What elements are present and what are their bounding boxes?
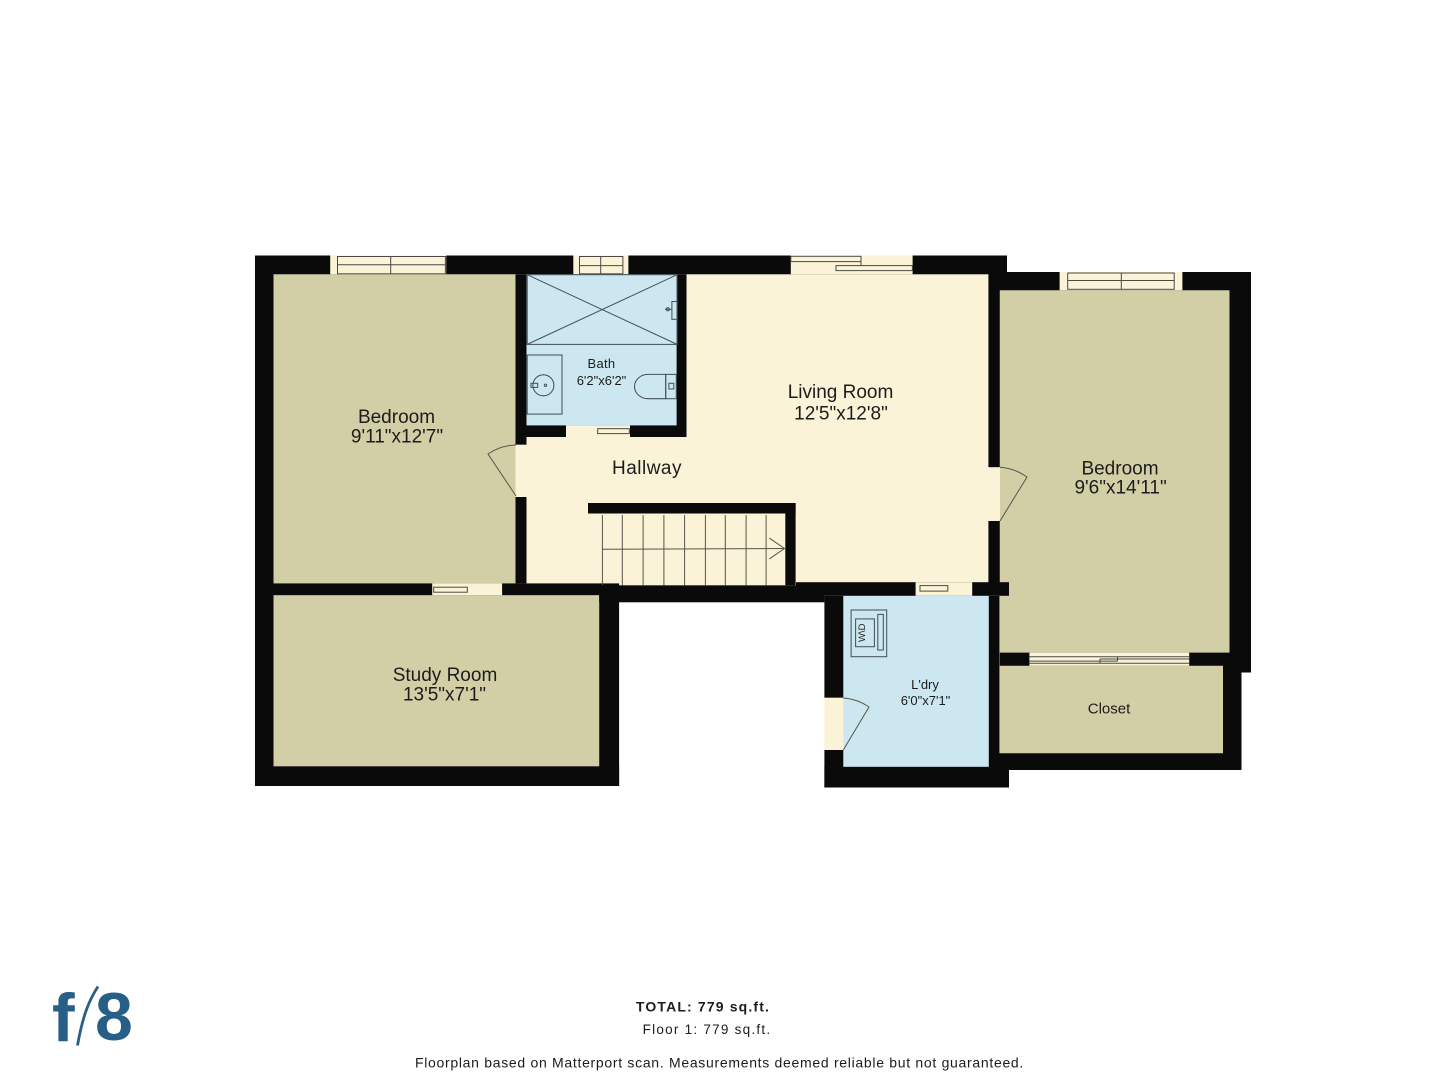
svg-text:TOTAL: 779 sq.ft.: TOTAL: 779 sq.ft. [636, 999, 770, 1015]
svg-text:Bath: Bath [588, 356, 616, 371]
svg-text:f: f [52, 980, 75, 1056]
svg-text:9'6"x14'11": 9'6"x14'11" [1074, 478, 1166, 499]
svg-text:Floor 1: 779 sq.ft.: Floor 1: 779 sq.ft. [643, 1022, 772, 1037]
svg-text:Floorplan based on Matterport: Floorplan based on Matterport scan. Meas… [415, 1055, 1024, 1071]
svg-text:W\D: W\D [857, 623, 868, 642]
svg-text:Closet: Closet [1088, 701, 1131, 718]
svg-text:Study Room: Study Room [393, 665, 498, 686]
svg-text:13'5"x7'1": 13'5"x7'1" [403, 685, 486, 706]
svg-text:6'2"x6'2": 6'2"x6'2" [577, 373, 627, 388]
svg-text:Hallway: Hallway [612, 458, 682, 479]
svg-text:L'dry: L'dry [911, 677, 939, 692]
svg-text:6'0"x7'1": 6'0"x7'1" [901, 693, 951, 708]
svg-text:Bedroom: Bedroom [358, 407, 435, 428]
svg-text:8: 8 [95, 979, 133, 1055]
svg-text:9'11"x12'7": 9'11"x12'7" [351, 427, 443, 448]
svg-text:12'5"x12'8": 12'5"x12'8" [794, 404, 888, 425]
svg-text:Living Room: Living Room [788, 382, 894, 403]
svg-text:Bedroom: Bedroom [1081, 458, 1158, 479]
